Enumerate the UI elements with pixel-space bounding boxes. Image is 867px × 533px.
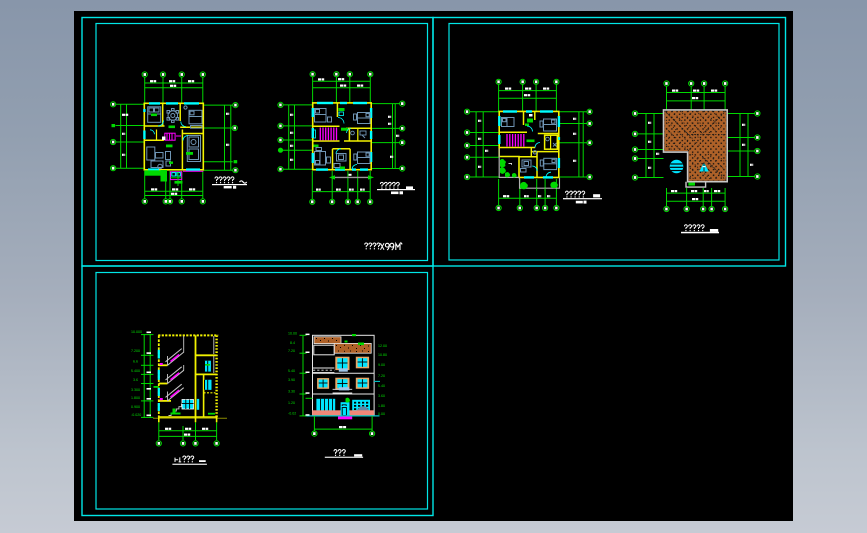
svg-text:-0.020: -0.020 <box>131 413 141 417</box>
svg-text:1.20: 1.20 <box>288 401 295 405</box>
svg-text:5.40: 5.40 <box>378 384 385 388</box>
svg-text:7.20: 7.20 <box>288 349 295 353</box>
svg-text:5.40: 5.40 <box>288 369 295 373</box>
svg-text:9.00: 9.00 <box>378 363 385 367</box>
svg-text:3.6: 3.6 <box>133 378 138 382</box>
svg-text:10.000: 10.000 <box>131 330 142 334</box>
svg-text:3.300: 3.300 <box>131 388 140 392</box>
svg-text:12.00: 12.00 <box>378 344 387 348</box>
svg-text:5.400: 5.400 <box>131 369 140 373</box>
svg-text:3.30: 3.30 <box>288 390 295 394</box>
svg-text:3.90: 3.90 <box>288 378 295 382</box>
svg-text:-0.02: -0.02 <box>288 412 296 416</box>
svg-text:7.200: 7.200 <box>131 349 140 353</box>
svg-text:8.4: 8.4 <box>290 341 295 345</box>
svg-text:7.20: 7.20 <box>378 374 385 378</box>
svg-text:1.800: 1.800 <box>131 396 140 400</box>
svg-text:6.6: 6.6 <box>133 360 138 364</box>
svg-text:10.80: 10.80 <box>378 353 387 357</box>
svg-text:3.60: 3.60 <box>378 394 385 398</box>
svg-text:0.00: 0.00 <box>378 412 385 416</box>
svg-text:1.80: 1.80 <box>378 404 385 408</box>
svg-text:0.900: 0.900 <box>131 405 140 409</box>
svg-text:10.00: 10.00 <box>288 332 297 336</box>
